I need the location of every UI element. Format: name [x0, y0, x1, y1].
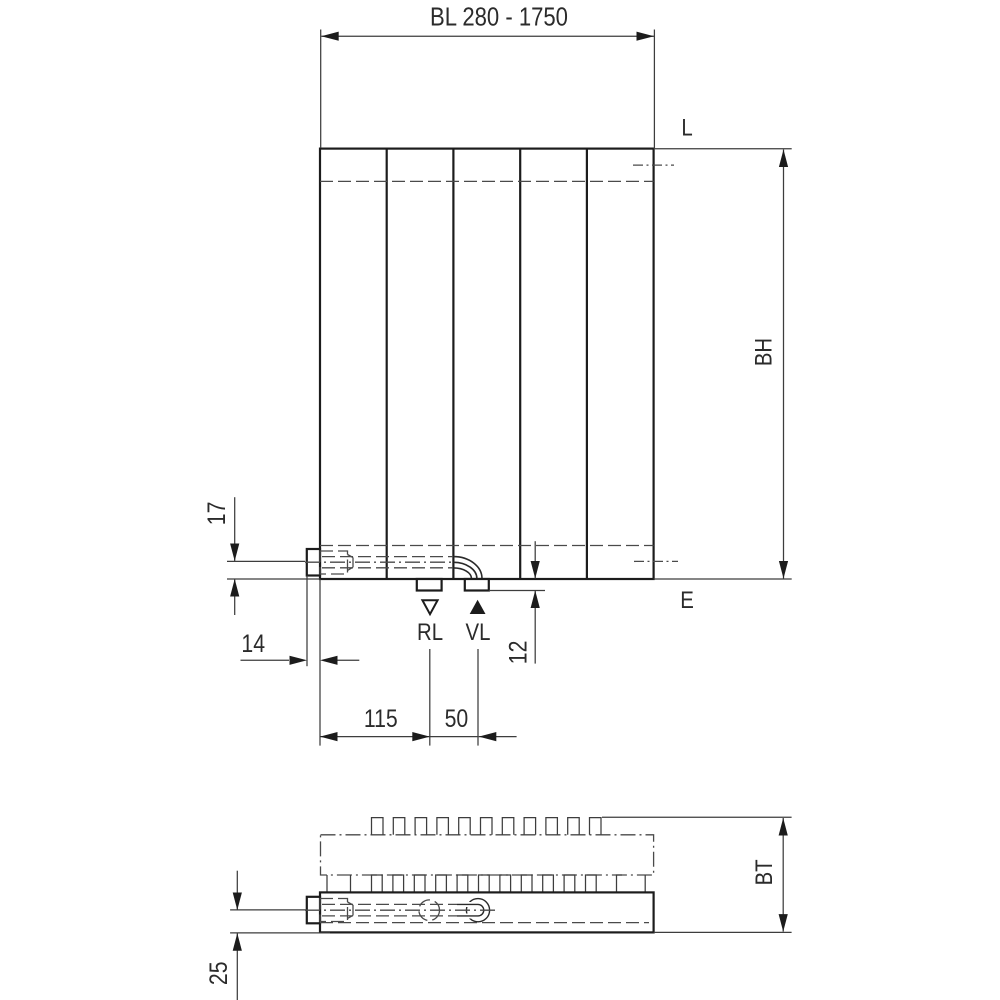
svg-text:14: 14	[241, 629, 265, 657]
svg-text:115: 115	[364, 704, 398, 732]
svg-text:50: 50	[445, 704, 469, 732]
svg-text:L: L	[681, 114, 692, 141]
svg-text:12: 12	[504, 641, 532, 665]
svg-text:17: 17	[203, 502, 231, 526]
svg-text:25: 25	[204, 961, 232, 985]
svg-text:BH: BH	[750, 338, 777, 366]
svg-text:E: E	[680, 586, 694, 613]
svg-text:BT: BT	[750, 859, 777, 885]
svg-text:BL 280 - 1750: BL 280 - 1750	[430, 3, 568, 32]
svg-text:VL: VL	[466, 618, 491, 645]
svg-text:RL: RL	[417, 618, 443, 645]
